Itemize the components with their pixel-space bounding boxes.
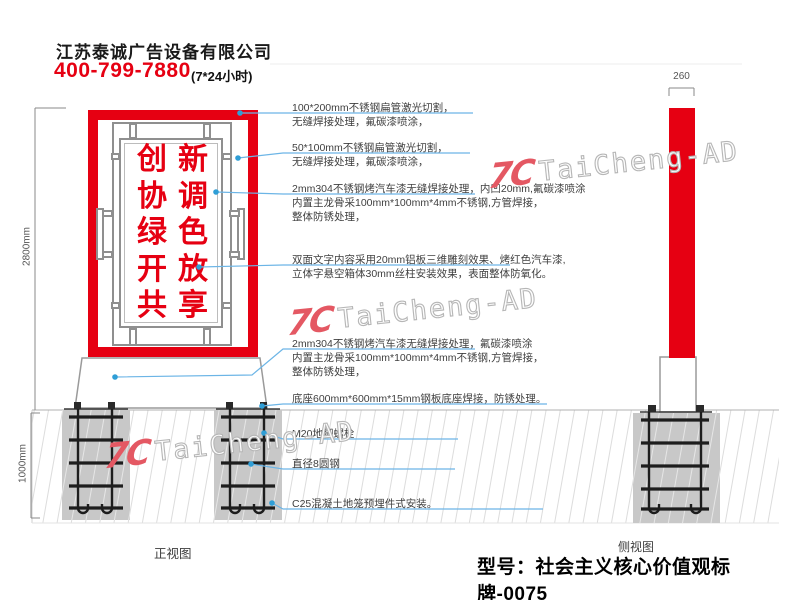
watermark-text: TaiCheng-AD	[538, 137, 741, 185]
watermark: 7C TaiCheng-AD	[286, 281, 540, 341]
annotation-line: 100*200mm不锈钢扁管激光切割，	[292, 101, 454, 115]
annotation-line: 内置主龙骨采100mm*100mm*4mm不锈钢,方管焊接，	[292, 351, 543, 365]
sign-char: 调	[176, 179, 210, 216]
lattice-post-top-left	[129, 123, 137, 139]
annotation-line: 内置主龙骨采100mm*100mm*4mm不锈钢,方管焊接，	[292, 196, 585, 210]
watermark: 7C TaiCheng-AD	[487, 134, 741, 194]
annotation-line: 整体防锈处理，	[292, 210, 585, 224]
sign-char: 开	[135, 252, 169, 289]
lattice-post-bottom-right	[203, 328, 211, 346]
service-hours: (7*24小时)	[191, 66, 252, 85]
lattice-stub	[222, 153, 232, 160]
front-view-label: 正视图	[154, 543, 192, 562]
sign-char: 享	[176, 288, 210, 325]
dimension-depth-label: 1000mm	[18, 436, 29, 492]
annotation-line: C25混凝土地笼预埋件式安装。	[292, 497, 437, 511]
annotation-line: 双面文字内容采用20mm铝板三维雕刻效果、烤红色汽车漆,	[292, 253, 566, 267]
annotation-frame-pipe: 50*100mm不锈钢扁管激光切割， 无缝焊接处理，氟碳漆喷涂，	[292, 141, 448, 169]
annotation-round-steel: 直径8圆钢	[292, 457, 340, 471]
watermark-logo-icon: 7C	[286, 302, 334, 341]
lattice-stub	[229, 210, 240, 217]
annotation-line: 直径8圆钢	[292, 457, 340, 471]
annotation-lettering: 双面文字内容采用20mm铝板三维雕刻效果、烤红色汽车漆, 立体字悬空箱体30mm…	[292, 253, 566, 281]
annotation-line: 底座600mm*600mm*15mm钢板底座焊接，防锈处理。	[292, 392, 546, 406]
sign-char: 绿	[135, 215, 169, 252]
annotation-line: 50*100mm不锈钢扁管激光切割，	[292, 141, 448, 155]
annotation-line: 立体字悬空箱体30mm丝柱安装效果，表面整体防氧化。	[292, 267, 566, 281]
sign-char: 新	[176, 142, 210, 179]
sign-char: 放	[176, 252, 210, 289]
lattice-post-bottom-left	[129, 328, 137, 346]
watermark-logo-icon: 7C	[103, 435, 151, 474]
lattice-stub	[102, 251, 113, 258]
sign-char: 创	[135, 142, 169, 179]
dimension-height-label: 2800mm	[22, 219, 33, 275]
lattice-stub	[229, 251, 240, 258]
steel-base-plates	[64, 409, 712, 412]
watermark-text: TaiCheng-AD	[337, 284, 540, 332]
annotation-pedestal-steel: 2mm304不锈钢烤汽车漆无缝焊接处理，氟碳漆喷涂 内置主龙骨采100mm*10…	[292, 337, 543, 379]
annotation-line: 无缝焊接处理，氟碳漆喷涂，	[292, 115, 454, 129]
watermark-logo-icon: 7C	[487, 155, 535, 194]
pedestal-base-front	[75, 358, 267, 408]
annotation-concrete: C25混凝土地笼预埋件式安装。	[292, 497, 437, 511]
annotation-line: 整体防锈处理，	[292, 365, 543, 379]
lattice-post-top-right	[203, 123, 211, 139]
foundation-side	[633, 413, 720, 523]
annotation-base-plate: 底座600mm*600mm*15mm钢板底座焊接，防锈处理。	[292, 392, 546, 406]
sign-char: 色	[176, 215, 210, 252]
sign-text-column-right: 新 调 色 放 享	[176, 142, 210, 325]
phone-number: 400-799-7880	[54, 59, 191, 83]
annotation-line: 无缝焊接处理，氟碳漆喷涂，	[292, 155, 448, 169]
sign-text-column-left: 创 协 绿 开 共	[135, 142, 169, 325]
drawing-canvas: 新 调 色 放 享 创 协 绿 开 共	[0, 0, 800, 600]
sign-char: 共	[135, 288, 169, 325]
lattice-stub	[102, 210, 113, 217]
annotation-top-pipe: 100*200mm不锈钢扁管激光切割， 无缝焊接处理，氟碳漆喷涂，	[292, 101, 454, 129]
dimension-width-label: 260	[666, 71, 697, 82]
pedestal-base-side	[660, 357, 696, 412]
model-number: 型号：社会主义核心价值观标牌-0075	[477, 552, 800, 600]
lattice-stub	[222, 302, 232, 309]
sign-char: 协	[135, 179, 169, 216]
